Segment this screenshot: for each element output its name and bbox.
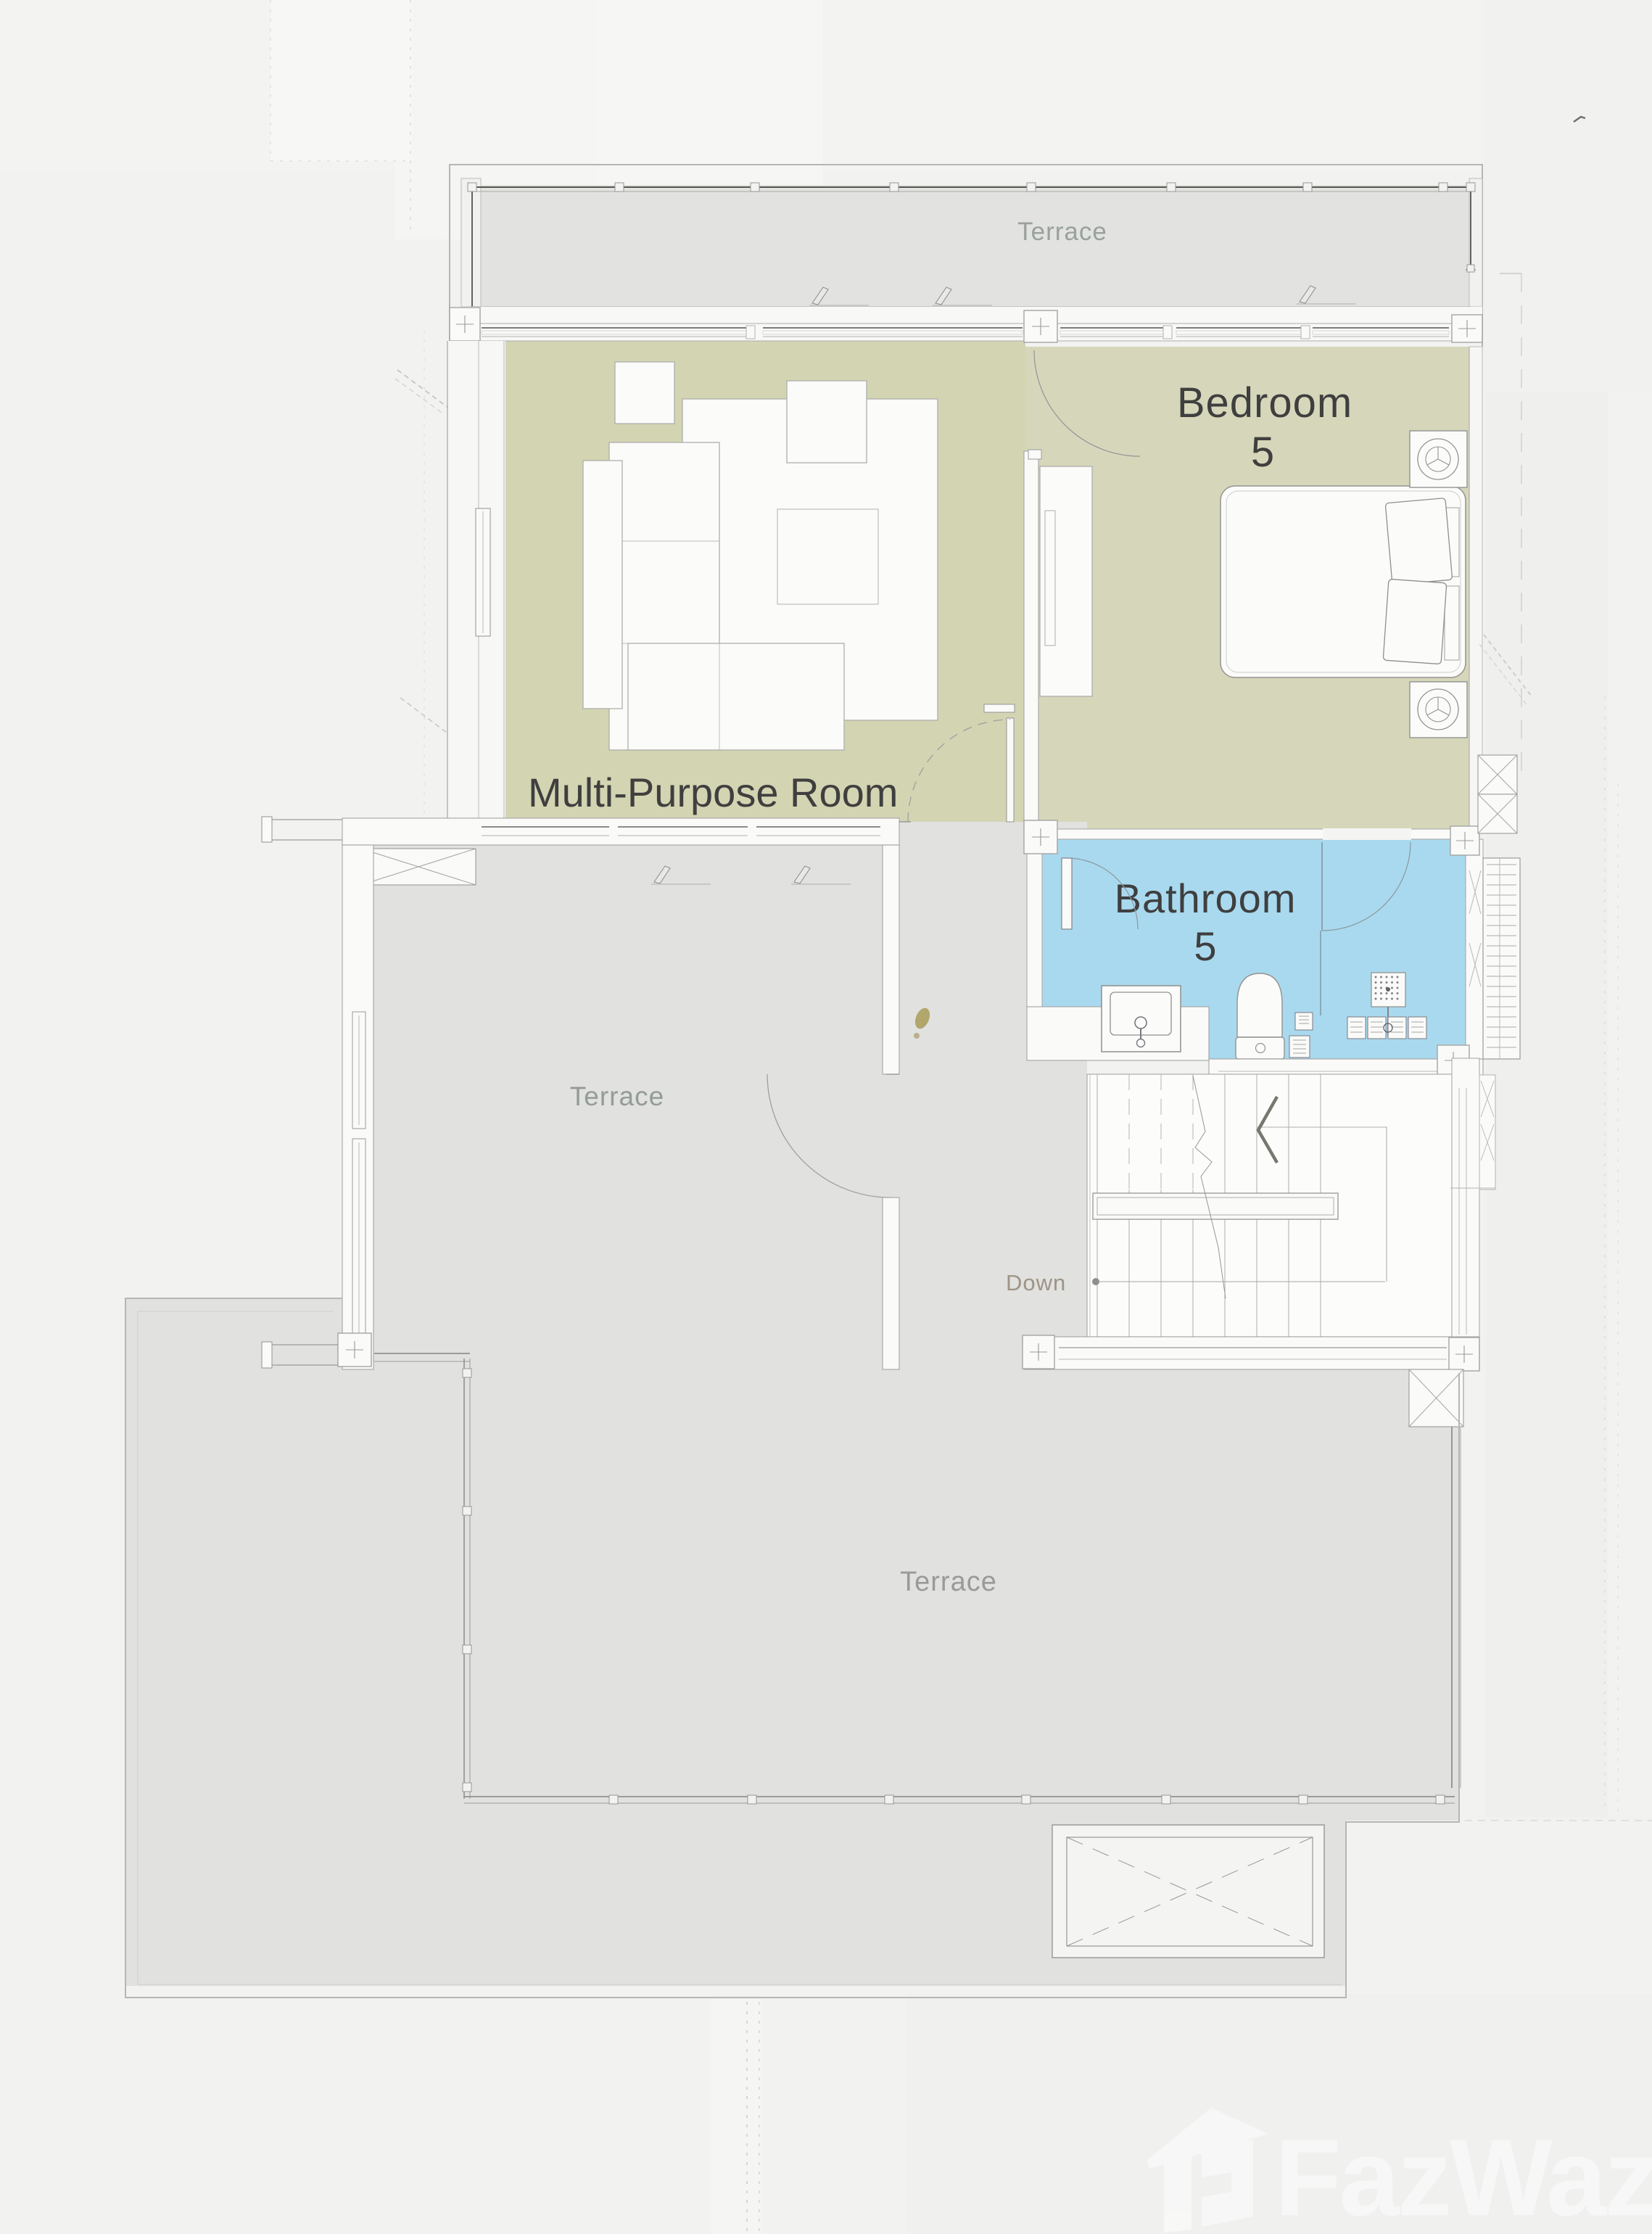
svg-text:5: 5 xyxy=(1194,923,1216,969)
svg-text:Bedroom: Bedroom xyxy=(1177,379,1352,426)
svg-text:Terrace: Terrace xyxy=(1017,218,1107,246)
svg-text:Multi-Purpose Room: Multi-Purpose Room xyxy=(528,770,898,815)
svg-text:5: 5 xyxy=(1251,429,1274,476)
svg-text:FazWaz: FazWaz xyxy=(1275,2116,1652,2234)
svg-text:Down: Down xyxy=(1006,1270,1066,1295)
svg-text:Terrace: Terrace xyxy=(570,1081,664,1111)
svg-text:Terrace: Terrace xyxy=(900,1567,997,1597)
svg-text:Bathroom: Bathroom xyxy=(1115,875,1297,921)
